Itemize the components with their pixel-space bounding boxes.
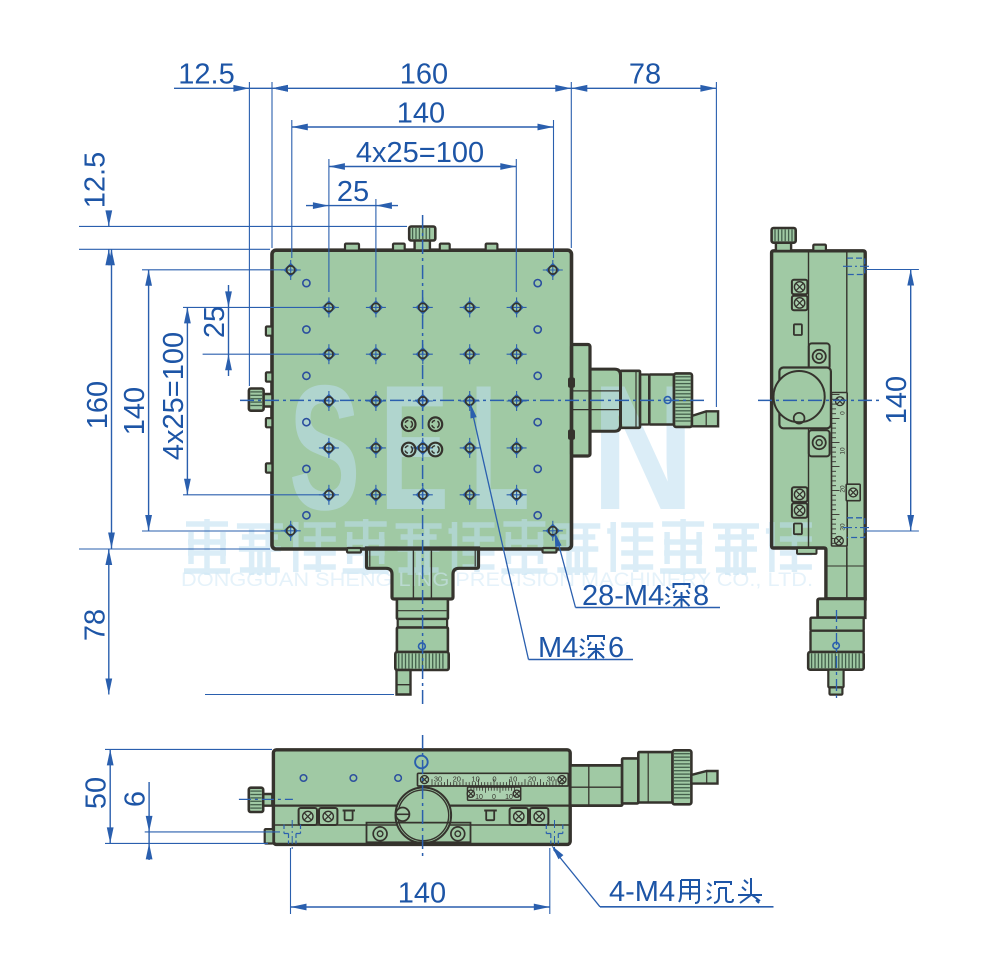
svg-text:DONGGUAN SHENG LING PRECISION: DONGGUAN SHENG LING PRECISION MACHINERY … xyxy=(181,570,813,591)
svg-text:M4: M4 xyxy=(538,632,578,664)
svg-text:10: 10 xyxy=(505,794,513,801)
svg-text:78: 78 xyxy=(629,59,661,91)
svg-text:4x25=100: 4x25=100 xyxy=(356,137,484,169)
svg-text:8: 8 xyxy=(693,580,709,612)
svg-text:30: 30 xyxy=(547,775,555,784)
svg-text:4x25=100: 4x25=100 xyxy=(158,332,190,460)
svg-text:140: 140 xyxy=(881,376,913,424)
svg-text:160: 160 xyxy=(400,59,448,91)
svg-text:12.5: 12.5 xyxy=(79,152,111,208)
svg-text:25: 25 xyxy=(337,176,369,208)
svg-text:160: 160 xyxy=(82,381,114,429)
svg-text:6: 6 xyxy=(120,791,152,807)
svg-text:10: 10 xyxy=(840,447,847,455)
svg-text:140: 140 xyxy=(119,387,151,435)
svg-text:0: 0 xyxy=(492,794,496,801)
svg-text:6: 6 xyxy=(608,632,624,664)
svg-text:0: 0 xyxy=(840,411,847,415)
svg-text:25: 25 xyxy=(199,306,231,338)
svg-text:78: 78 xyxy=(79,609,111,641)
svg-text:20: 20 xyxy=(528,775,536,784)
svg-text:10: 10 xyxy=(509,775,517,784)
svg-text:12.5: 12.5 xyxy=(178,59,234,91)
svg-text:28-M4: 28-M4 xyxy=(582,580,664,612)
svg-text:140: 140 xyxy=(398,877,446,909)
svg-text:4-M4: 4-M4 xyxy=(609,876,675,908)
svg-text:50: 50 xyxy=(81,777,113,809)
svg-text:10: 10 xyxy=(475,794,483,801)
svg-text:30: 30 xyxy=(840,523,847,531)
svg-text:140: 140 xyxy=(397,97,445,129)
